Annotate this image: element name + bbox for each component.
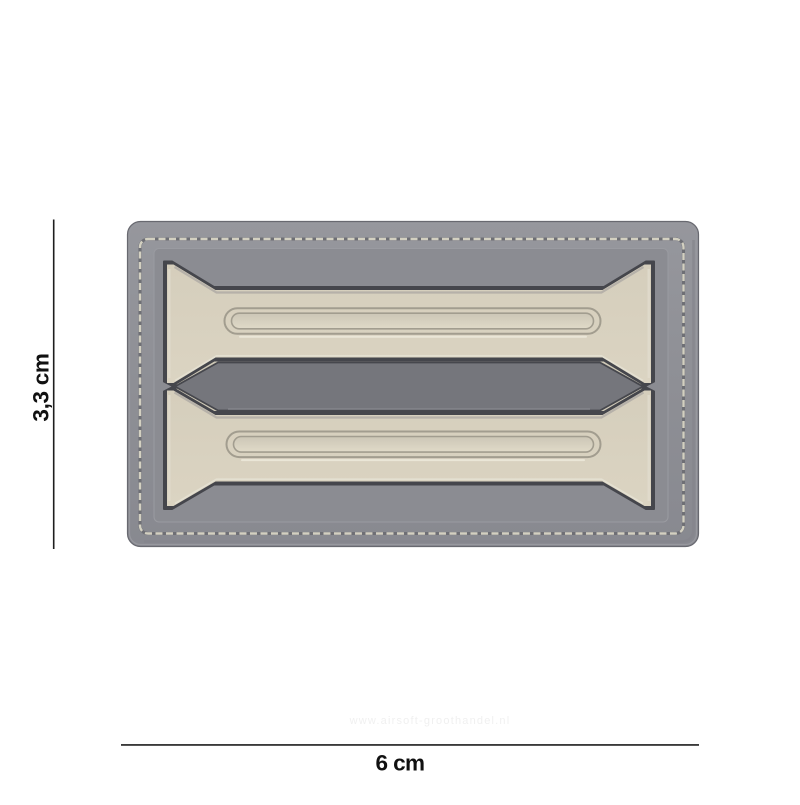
svg-text:www.airsoft-groothandel.nl: www.airsoft-groothandel.nl [349,715,511,727]
svg-text:6 cm: 6 cm [376,751,425,776]
svg-text:3,3 cm: 3,3 cm [29,353,54,421]
